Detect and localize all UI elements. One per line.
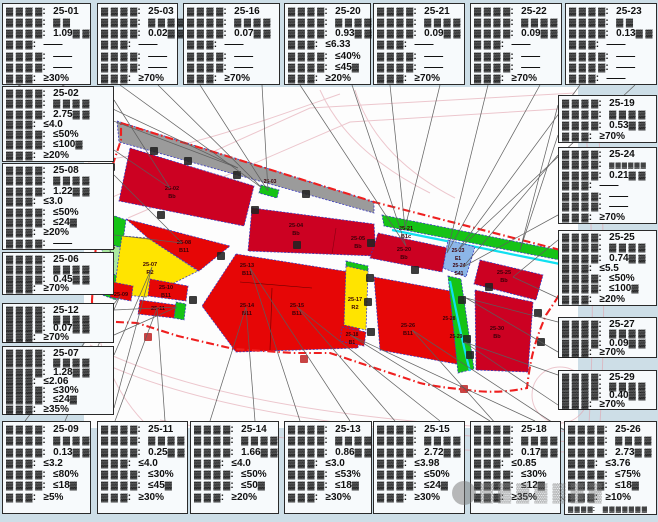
svg-text:Bb: Bb [500,278,508,284]
svg-text:25-23: 25-23 [452,248,465,254]
svg-text:25-04: 25-04 [289,223,304,229]
svg-text:25-10: 25-10 [159,285,173,291]
svg-text:25-07: 25-07 [143,262,157,268]
svg-text:25-13: 25-13 [240,263,254,269]
svg-text:25-17: 25-17 [348,297,362,303]
svg-text:B11: B11 [179,248,189,254]
svg-text:S41: S41 [455,271,464,277]
svg-text:25-25: 25-25 [497,270,511,276]
svg-text:B11: B11 [292,311,302,317]
svg-text:25-11: 25-11 [151,306,165,312]
svg-text:25-20: 25-20 [397,247,411,253]
svg-text:25-09: 25-09 [114,292,128,298]
svg-text:B1: B1 [349,340,356,346]
svg-text:25-18: 25-18 [346,332,359,338]
svg-text:25-03: 25-03 [264,179,277,185]
svg-text:Bb: Bb [400,255,408,261]
svg-text:R2: R2 [351,305,358,311]
svg-text:25-29: 25-29 [450,334,463,340]
svg-text:Bb: Bb [168,194,176,200]
svg-text:25-28: 25-28 [443,316,456,322]
svg-text:Bb: Bb [354,244,362,250]
svg-text:25-26: 25-26 [401,323,415,329]
svg-text:25-30: 25-30 [490,326,504,332]
svg-text:E1: E1 [455,256,461,262]
svg-text:Bb: Bb [493,334,501,340]
svg-text:B11: B11 [161,293,171,299]
svg-text:B11: B11 [403,331,413,337]
svg-text:25-14: 25-14 [240,303,255,309]
svg-text:25-15: 25-15 [290,303,304,309]
svg-text:B11: B11 [242,271,252,277]
svg-text:Bb: Bb [292,231,300,237]
svg-text:25-05: 25-05 [351,236,365,242]
svg-text:25-02: 25-02 [165,186,179,192]
